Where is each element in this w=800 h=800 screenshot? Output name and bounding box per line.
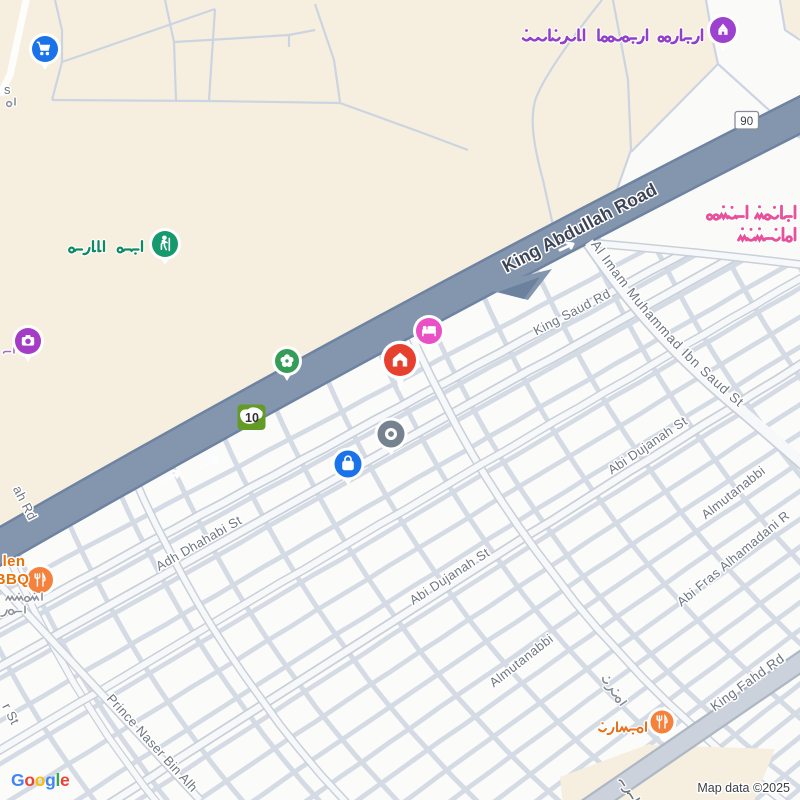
svg-text:10: 10 (245, 411, 259, 425)
svg-text:s: s (4, 82, 11, 97)
svg-text:Google: Google (11, 770, 70, 790)
svg-text:BBQ: BBQ (0, 571, 29, 588)
svg-text:90: 90 (740, 116, 753, 128)
svg-text:Map data ©2025: Map data ©2025 (697, 781, 790, 795)
svg-text:len: len (3, 553, 26, 570)
